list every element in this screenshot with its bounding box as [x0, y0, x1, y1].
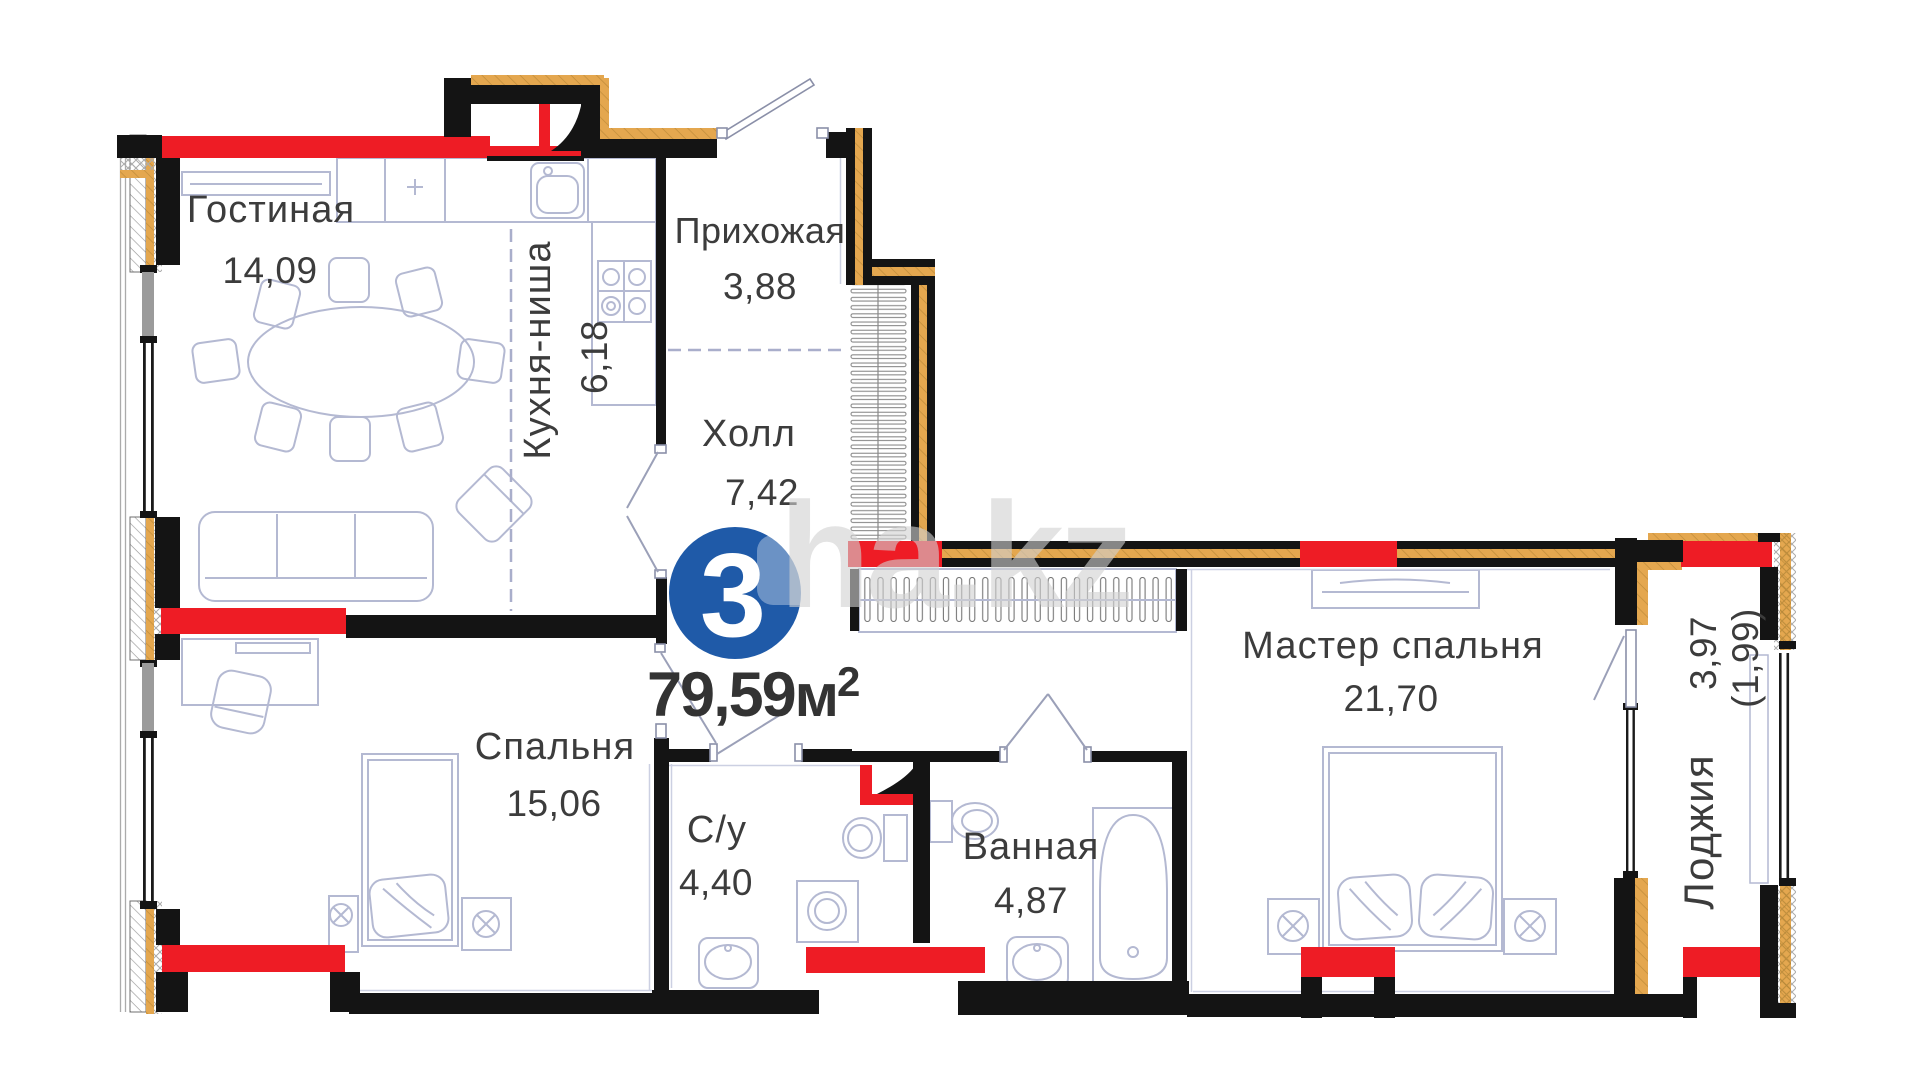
svg-text:79,59м2: 79,59м2: [647, 658, 859, 730]
svg-text:4,87: 4,87: [994, 880, 1068, 921]
svg-text:Лоджия: Лоджия: [1675, 754, 1722, 909]
svg-text:4,40: 4,40: [679, 862, 753, 903]
svg-text:Гостиная: Гостиная: [187, 189, 355, 231]
svg-text:Мастер спальня: Мастер спальня: [1242, 625, 1544, 667]
svg-text:(1,99): (1,99): [1725, 608, 1766, 708]
svg-text:3: 3: [700, 529, 766, 662]
svg-text:Прихожая: Прихожая: [675, 210, 846, 251]
svg-text:Холл: Холл: [702, 413, 796, 455]
svg-text:ha.kz: ha.kz: [779, 471, 1129, 639]
svg-text:3,88: 3,88: [723, 266, 797, 307]
svg-text:Ванная: Ванная: [963, 826, 1100, 868]
svg-text:Кухня-ниша: Кухня-ниша: [517, 240, 559, 459]
svg-text:15,06: 15,06: [506, 783, 601, 824]
svg-text:21,70: 21,70: [1343, 678, 1438, 719]
svg-text:3,97: 3,97: [1683, 616, 1724, 690]
svg-text:С/у: С/у: [687, 809, 747, 851]
svg-text:14,09: 14,09: [222, 250, 317, 291]
svg-text:Спальня: Спальня: [475, 726, 635, 768]
svg-text:6,18: 6,18: [574, 320, 615, 394]
